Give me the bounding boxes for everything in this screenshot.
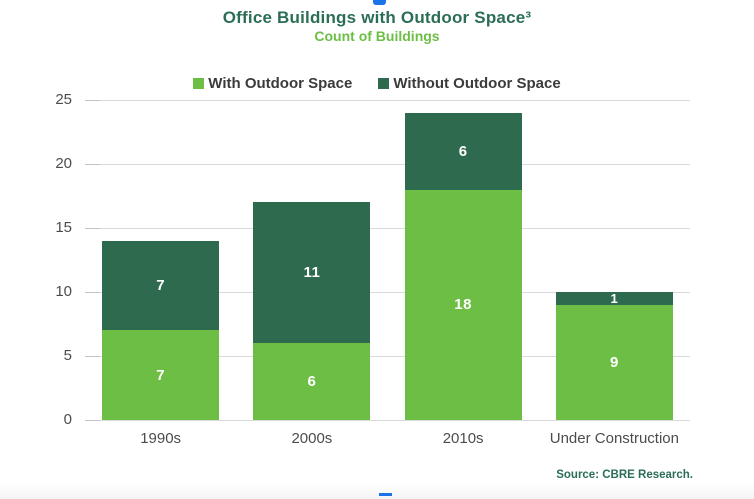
bar-segment-with-outdoor-space: 9 [556,305,673,420]
tick-y20 [85,164,100,165]
y-axis-label-5: 5 [18,347,72,364]
chart-canvas: Office Buildings with Outdoor Space³ Cou… [0,0,754,499]
legend-item-0: With Outdoor Space [193,75,352,92]
segment-value-label: 7 [156,277,165,294]
y-axis-label-25: 25 [18,91,72,108]
y-axis-label-20: 20 [18,155,72,172]
bar-2010s: 186 [405,113,522,420]
bar-segment-with-outdoor-space: 7 [102,330,219,420]
y-axis-label-15: 15 [18,219,72,236]
y-axis-label-0: 0 [18,411,72,428]
segment-value-label: 7 [156,367,165,384]
source-note: Source: CBRE Research. [556,469,693,481]
chart-subtitle: Count of Buildings [0,28,754,44]
y-axis-label-10: 10 [18,283,72,300]
bar-2000s: 611 [253,202,370,420]
x-axis-label-2000s: 2000s [236,430,387,447]
x-axis-label-1990s: 1990s [85,430,236,447]
gridline-y25 [85,100,690,101]
legend-label: With Outdoor Space [208,75,352,92]
chart-title: Office Buildings with Outdoor Space³ [0,8,754,28]
segment-value-label: 18 [454,296,472,313]
tick-y0 [85,420,100,421]
bar-under-construction: 91 [556,292,673,420]
legend: With Outdoor SpaceWithout Outdoor Space [0,75,754,92]
bar-1990s: 77 [102,241,219,420]
bar-segment-with-outdoor-space: 18 [405,190,522,420]
tick-y10 [85,292,100,293]
selection-handle-top[interactable] [373,0,386,5]
gridline-y15 [85,228,690,229]
bar-segment-without-outdoor-space: 1 [556,292,673,305]
bar-segment-without-outdoor-space: 11 [253,202,370,343]
tick-y15 [85,228,100,229]
plot-area: 7761118691 [85,100,690,420]
tick-y25 [85,100,100,101]
legend-swatch-icon [378,78,389,89]
bar-segment-without-outdoor-space: 6 [405,113,522,190]
segment-value-label: 1 [611,292,619,305]
legend-swatch-icon [193,78,204,89]
legend-item-1: Without Outdoor Space [378,75,560,92]
x-axis-label-2010s: 2010s [388,430,539,447]
bar-segment-without-outdoor-space: 7 [102,241,219,331]
segment-value-label: 6 [307,373,316,390]
bottom-strip [0,484,754,499]
x-axis-label-under-construction: Under Construction [539,430,690,447]
gridline-y20 [85,164,690,165]
segment-value-label: 11 [303,264,320,281]
tick-y5 [85,356,100,357]
selection-handle-bottom[interactable] [379,493,392,496]
segment-value-label: 6 [459,143,468,160]
segment-value-label: 9 [610,354,619,371]
legend-label: Without Outdoor Space [393,75,560,92]
bar-segment-with-outdoor-space: 6 [253,343,370,420]
